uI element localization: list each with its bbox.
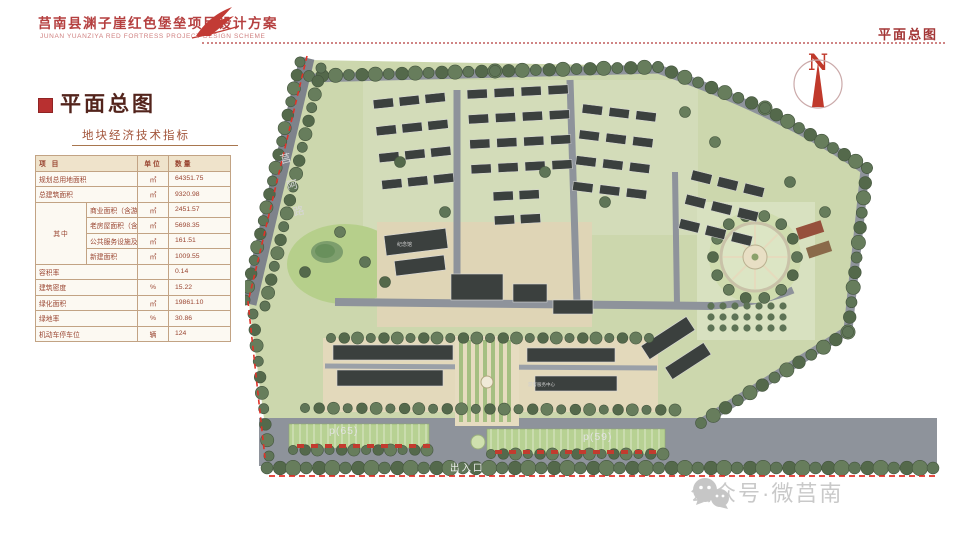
- table-row: 机动车停车位 辆 124: [36, 326, 231, 342]
- row-unit: ㎡: [138, 187, 169, 203]
- row-value: 161.51: [169, 233, 231, 249]
- row-value: 5698.35: [169, 218, 231, 234]
- section-marker-icon: [38, 98, 53, 113]
- row-unit: %: [138, 280, 169, 296]
- row-value: 2451.57: [169, 202, 231, 218]
- page-label: 平面总图: [878, 24, 938, 43]
- table-row: 规划总用地面积 ㎡ 64351.75: [36, 171, 231, 187]
- entrance-label: 出入口: [450, 460, 485, 474]
- row-value: 9320.98: [169, 187, 231, 203]
- visitor-center-label: 游客服务中心: [528, 382, 555, 388]
- row-value: 15.22: [169, 280, 231, 296]
- row-unit: ㎡: [138, 295, 169, 311]
- wechat-icon: [690, 476, 732, 510]
- section-title: 平面总图: [60, 88, 156, 118]
- watermark: 公众号·微莒南: [690, 476, 843, 508]
- table-header-row: 项 目 单位 数量: [36, 156, 231, 172]
- row-unit: ㎡: [138, 202, 169, 218]
- row-value: 1009.55: [169, 249, 231, 265]
- parking-left-label: p(65): [329, 425, 359, 437]
- row-value: 30.86: [169, 311, 231, 327]
- row-unit: 辆: [138, 326, 169, 342]
- row-value: 0.14: [169, 264, 231, 280]
- row-label: 容积率: [36, 264, 138, 280]
- table-row: 总建筑面积 ㎡ 9320.98: [36, 187, 231, 203]
- header-divider: [202, 42, 945, 44]
- row-label: 绿地率: [36, 311, 138, 327]
- row-label: 绿化面积: [36, 295, 138, 311]
- parking-right-label: p(59): [583, 431, 613, 443]
- col-header-item: 项 目: [36, 156, 138, 172]
- site-plan: 莒阿路 p(65) p(59) 出入口 纪念馆 游客服务中心 N 公众号·微莒南: [245, 52, 945, 510]
- row-unit: ㎡: [138, 249, 169, 265]
- row-label: 规划总用地面积: [36, 171, 138, 187]
- col-header-qty: 数量: [169, 156, 231, 172]
- row-label: 总建筑面积: [36, 187, 138, 203]
- group-label: 其中: [36, 202, 87, 264]
- row-label: 商业面积（含游客中心）: [87, 202, 138, 218]
- row-unit: ㎡: [138, 233, 169, 249]
- table-title-underline: [72, 145, 238, 146]
- project-title: 莒南县渊子崖红色堡垒项目设计方案: [38, 12, 278, 32]
- row-unit: %: [138, 311, 169, 327]
- row-value: 124: [169, 326, 231, 342]
- memorial-hall-label: 纪念馆: [397, 241, 412, 248]
- table-row: 绿地率 % 30.86: [36, 311, 231, 327]
- row-unit: ㎡: [138, 171, 169, 187]
- table-row: 容积率 0.14: [36, 264, 231, 280]
- compass-icon: [788, 52, 848, 114]
- row-label: 建筑密度: [36, 280, 138, 296]
- row-value: 64351.75: [169, 171, 231, 187]
- economic-indicator-table: 项 目 单位 数量 规划总用地面积 ㎡ 64351.75 总建筑面积 ㎡ 932…: [35, 155, 231, 342]
- design-scheme-slide: { "header": { "title_cn": "莒南县渊子崖红色堡垒项目设…: [0, 0, 960, 540]
- row-label: 机动车停车位: [36, 326, 138, 342]
- row-value: 19861.10: [169, 295, 231, 311]
- row-label: 新建面积: [87, 249, 138, 265]
- table-row: 绿化面积 ㎡ 19861.10: [36, 295, 231, 311]
- row-label: 老房屋面积（含展馆）: [87, 218, 138, 234]
- table-row: 其中 商业面积（含游客中心） ㎡ 2451.57: [36, 202, 231, 218]
- indicator-table-title: 地块经济技术指标: [82, 127, 190, 143]
- table-row: 建筑密度 % 15.22: [36, 280, 231, 296]
- row-label: 公共服务设施及基础设施面积: [87, 233, 138, 249]
- row-unit: ㎡: [138, 218, 169, 234]
- col-header-unit: 单位: [138, 156, 169, 172]
- row-unit: [138, 264, 169, 280]
- north-arrow: N: [788, 52, 848, 144]
